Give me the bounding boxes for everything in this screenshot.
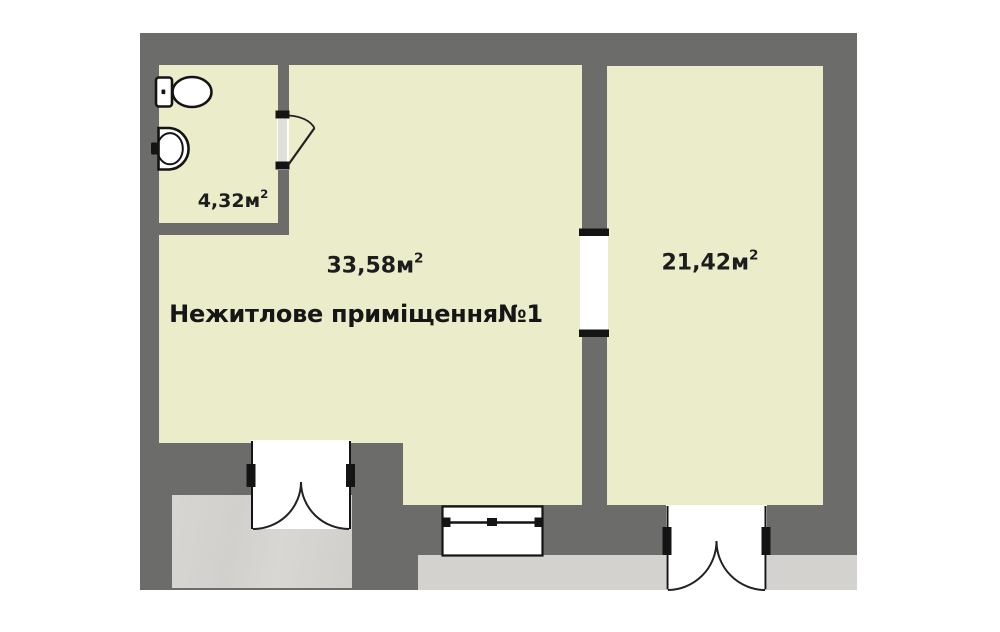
main-room-area-unit: м <box>396 254 414 279</box>
bathroom-area-value: 4,32 <box>198 190 245 212</box>
right-room-area-value: 21,42 <box>661 251 731 276</box>
bathroom-door-swing-icon <box>276 111 315 171</box>
main-room-area-label: 33,58м2 <box>326 254 423 279</box>
double-door-icon-left <box>247 440 356 529</box>
main-room-area-sup: 2 <box>414 250 423 266</box>
window-icon <box>442 507 544 556</box>
wall-opening <box>579 229 609 338</box>
bathroom-area-sup: 2 <box>260 187 268 201</box>
main-room-area-value: 33,58 <box>326 254 396 279</box>
double-door-icon-right <box>663 505 771 590</box>
toilet-icon <box>156 77 212 107</box>
right-room-area-label: 21,42м2 <box>661 251 758 276</box>
floor-plan-page: 4,32м2 33,58м2 21,42м2 Нежитлове приміще… <box>0 0 1000 632</box>
main-room-title: Нежитлове приміщення№1 <box>169 300 543 328</box>
bathroom-area-unit: м <box>245 190 261 212</box>
right-room-area-unit: м <box>731 251 749 276</box>
right-room-area-sup: 2 <box>749 247 758 263</box>
sink-icon <box>151 128 189 170</box>
bathroom-area-label: 4,32м2 <box>198 190 269 212</box>
